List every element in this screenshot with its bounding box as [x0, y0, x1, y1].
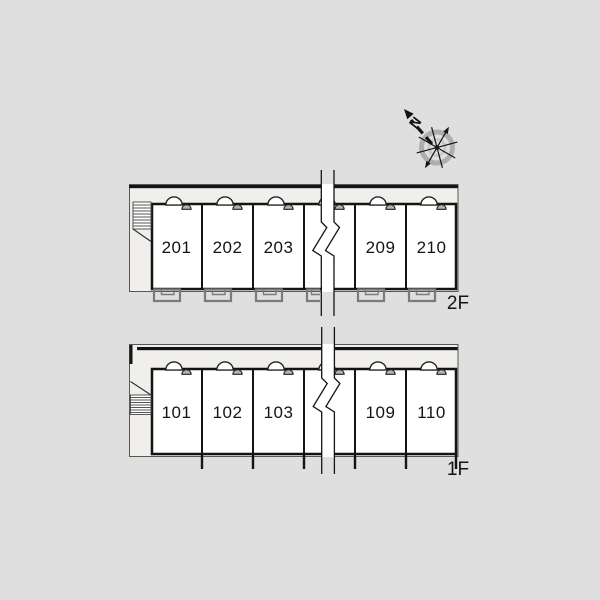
room-label: 101 [151, 403, 202, 423]
floor-label-1f: 1F [438, 460, 478, 480]
room-label: 201 [151, 238, 202, 258]
floor-label-2f: 2F [438, 294, 478, 314]
north-arrow-icon: N [404, 109, 432, 144]
room-label: 202 [202, 238, 253, 258]
room-label: 203 [253, 238, 304, 258]
floorplan-page: N 201 202 203 209 210 2F 101 102 103 109… [0, 0, 600, 600]
room-label: 110 [406, 403, 457, 423]
floorplan-drawing: N [0, 0, 600, 600]
room-label: 210 [406, 238, 457, 258]
room-label: 103 [253, 403, 304, 423]
room-label: 102 [202, 403, 253, 423]
room-label: 209 [355, 238, 406, 258]
compass-icon: N [404, 109, 457, 168]
floor-plan-1f [130, 327, 459, 474]
room-label: 109 [355, 403, 406, 423]
